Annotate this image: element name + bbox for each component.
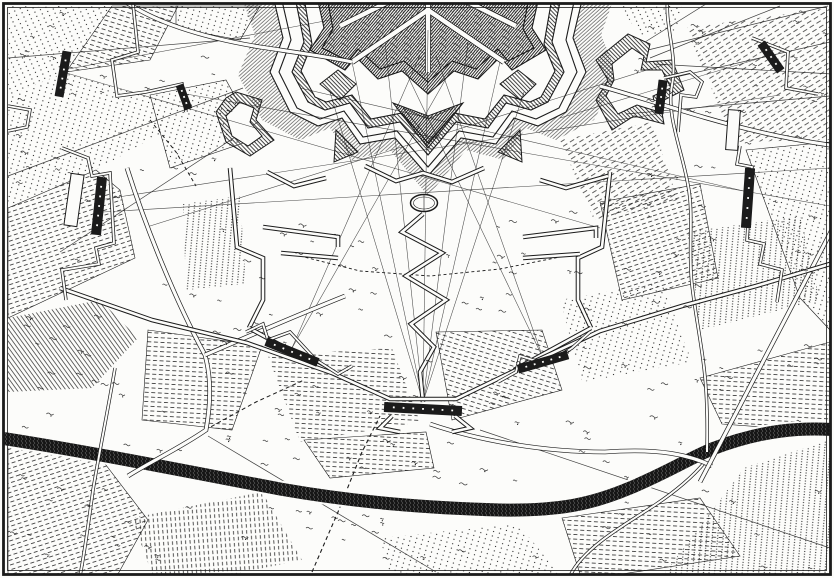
engraved-siege-map-page (0, 0, 834, 578)
map-content (0, 0, 834, 578)
siege-map-engraving (0, 0, 834, 578)
redoubt-outline (726, 110, 741, 151)
mine-crater-oval (411, 195, 438, 212)
